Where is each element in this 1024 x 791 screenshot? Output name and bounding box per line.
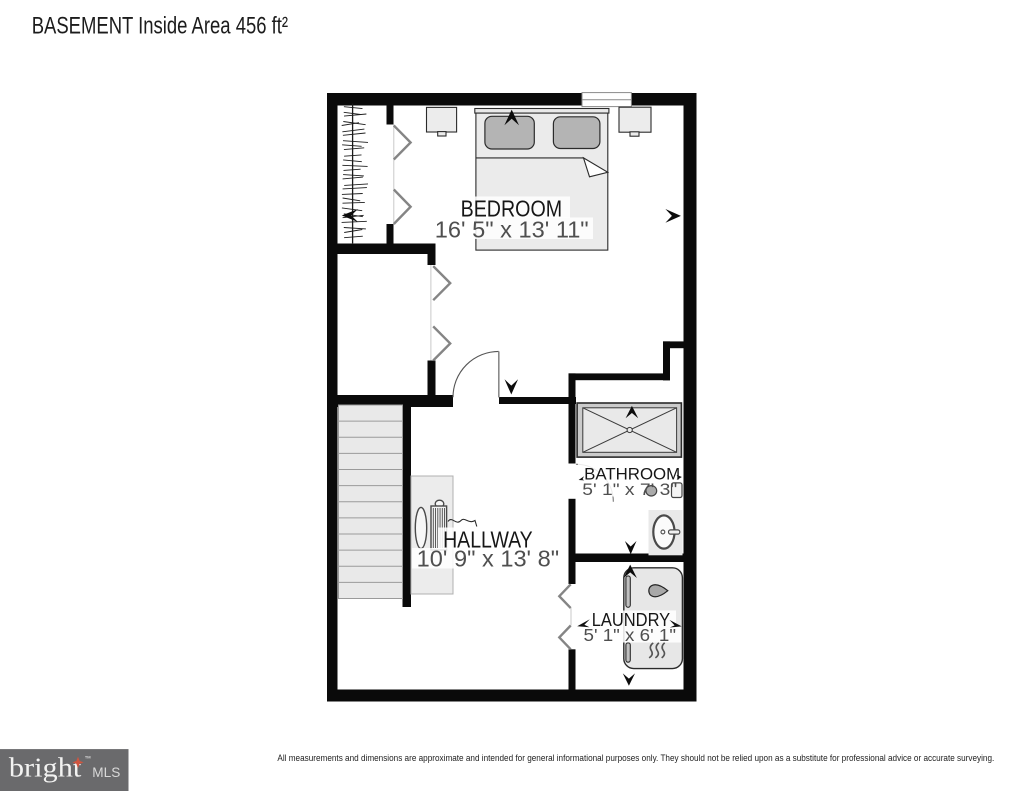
svg-text:10' 9" x 13' 8": 10' 9" x 13' 8": [417, 546, 559, 572]
svg-text:bright: bright: [9, 752, 82, 782]
svg-text:16' 5" x 13' 11": 16' 5" x 13' 11": [435, 216, 589, 242]
svg-text:MLS: MLS: [92, 765, 120, 780]
svg-text:5' 1" x 7' 3": 5' 1" x 7' 3": [582, 480, 677, 499]
svg-text:™: ™: [85, 756, 92, 763]
svg-text:BASEMENT Inside Area 456 ft²: BASEMENT Inside Area 456 ft²: [32, 13, 288, 40]
svg-text:All measurements and dimension: All measurements and dimensions are appr…: [277, 753, 994, 763]
svg-text:5' 1" x 6' 1": 5' 1" x 6' 1": [584, 625, 677, 645]
